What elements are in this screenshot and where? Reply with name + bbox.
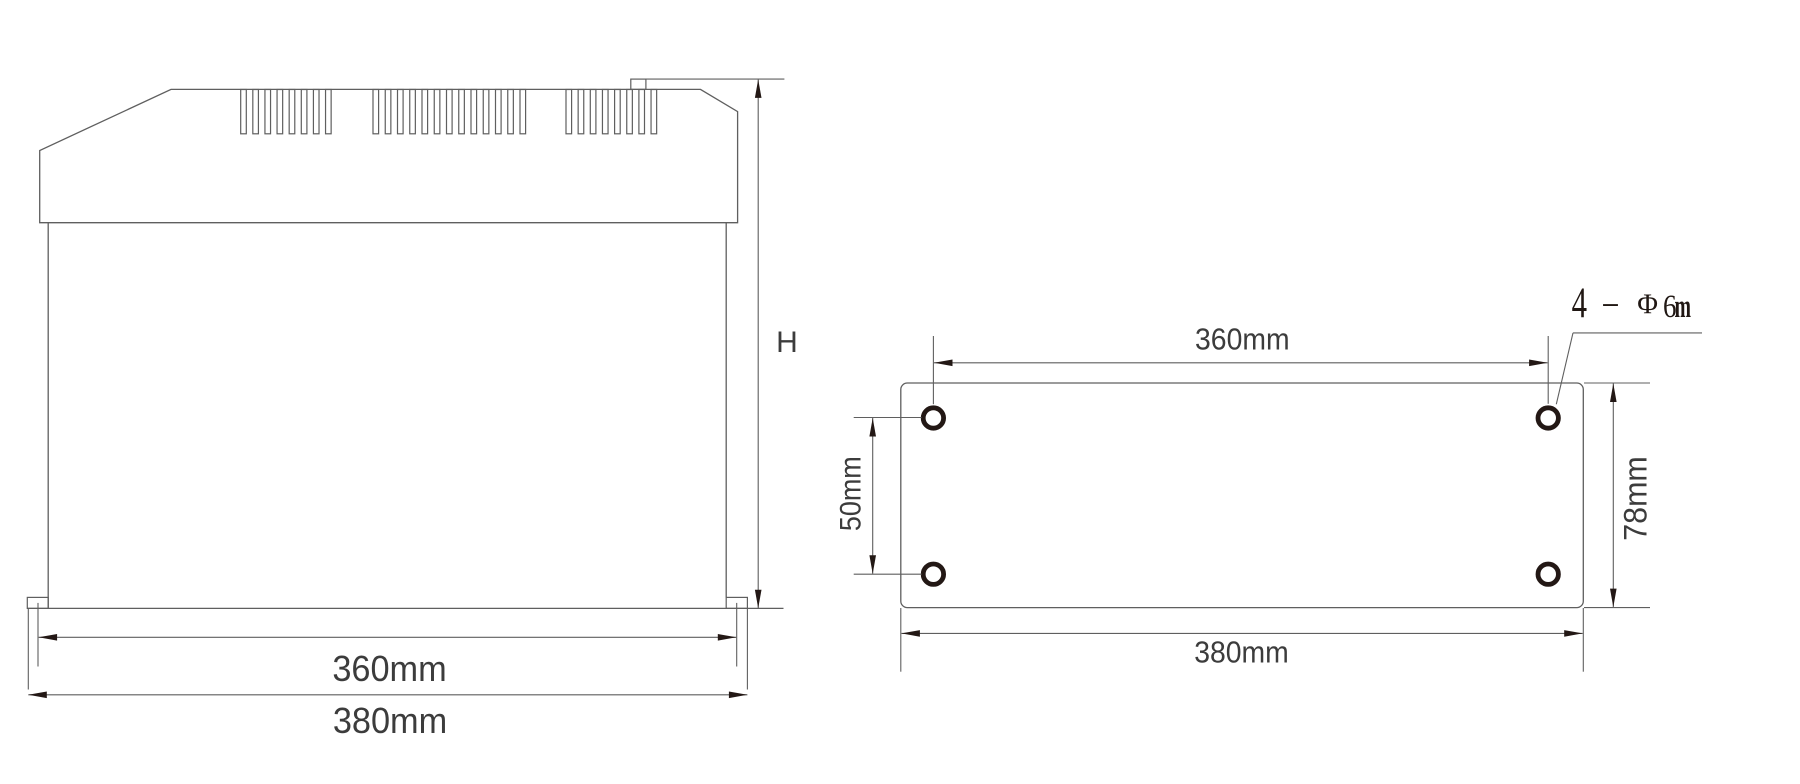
svg-text:Φ: Φ	[1637, 288, 1658, 320]
svg-text:380mm: 380mm	[333, 700, 447, 741]
svg-text:78mm: 78mm	[1618, 456, 1654, 540]
svg-text:50mm: 50mm	[834, 456, 868, 531]
svg-text:H: H	[776, 326, 798, 359]
svg-text:360mm: 360mm	[1195, 322, 1290, 356]
svg-text:380mm: 380mm	[1194, 635, 1289, 669]
svg-text:4: 4	[1572, 280, 1587, 327]
svg-text:–: –	[1602, 281, 1618, 323]
svg-text:360mm: 360mm	[332, 648, 446, 689]
svg-text:m: m	[1675, 289, 1692, 325]
